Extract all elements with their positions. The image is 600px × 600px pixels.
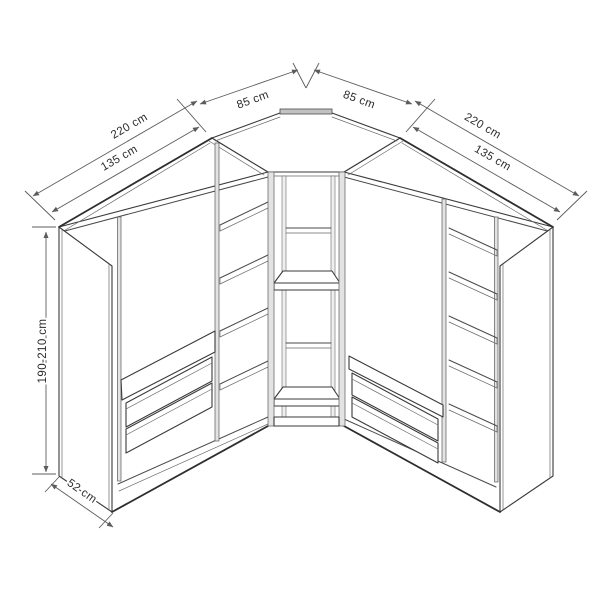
right-opening-edge — [495, 217, 499, 482]
shelf — [449, 360, 497, 388]
left-side-panel — [59, 227, 112, 512]
left-opening-edge — [118, 217, 122, 481]
corner-back-corner-left — [282, 176, 286, 417]
extension-line — [557, 191, 587, 220]
dim-label-right-corner: 85 cm — [341, 89, 376, 112]
left-divider-panel — [215, 143, 219, 441]
right-side-panel — [500, 227, 553, 512]
corner-shelf — [274, 271, 340, 290]
dim-label-right-total: 220 cm — [462, 111, 503, 141]
shelf — [220, 255, 268, 284]
corner-hanging-rod — [286, 228, 331, 233]
shelf — [449, 228, 497, 256]
right-shelf-column — [449, 228, 497, 432]
right-wardrobe — [344, 138, 553, 512]
corner-bottom-rail — [274, 417, 339, 426]
corner-hanging-rod — [286, 343, 331, 348]
extension-line — [25, 191, 55, 220]
shelf — [449, 272, 497, 300]
shelf — [449, 316, 497, 344]
dim-label-left-total: 220 cm — [109, 111, 150, 141]
dim-label-left-corner: 85 cm — [235, 89, 270, 112]
shelf — [220, 202, 268, 231]
corner-back-corner-right — [331, 176, 335, 417]
left-shelf-column — [220, 202, 268, 390]
extension-line — [306, 63, 319, 88]
shelf — [449, 404, 497, 432]
diagram-canvas: 220 cm 135 cm 85 cm 85 cm 220 cm 135 cm … — [0, 0, 600, 600]
corner-stile-left — [268, 172, 274, 426]
corner-wardrobe-diagram: 220 cm 135 cm 85 cm 85 cm 220 cm 135 cm … — [0, 0, 600, 600]
left-wardrobe — [59, 138, 268, 512]
extension-line — [293, 63, 306, 88]
dim-label-left-unit: 135 cm — [99, 143, 140, 173]
dim-label-height: 190-210 cm — [37, 319, 49, 384]
corner-stile-right — [339, 172, 345, 426]
right-divider-panel — [442, 199, 446, 462]
shelf — [220, 361, 268, 390]
corner-back-cut-edge — [280, 109, 332, 114]
dim-label-right-unit: 135 cm — [472, 143, 513, 173]
corner-shelf — [274, 387, 340, 406]
shelf — [220, 308, 268, 337]
